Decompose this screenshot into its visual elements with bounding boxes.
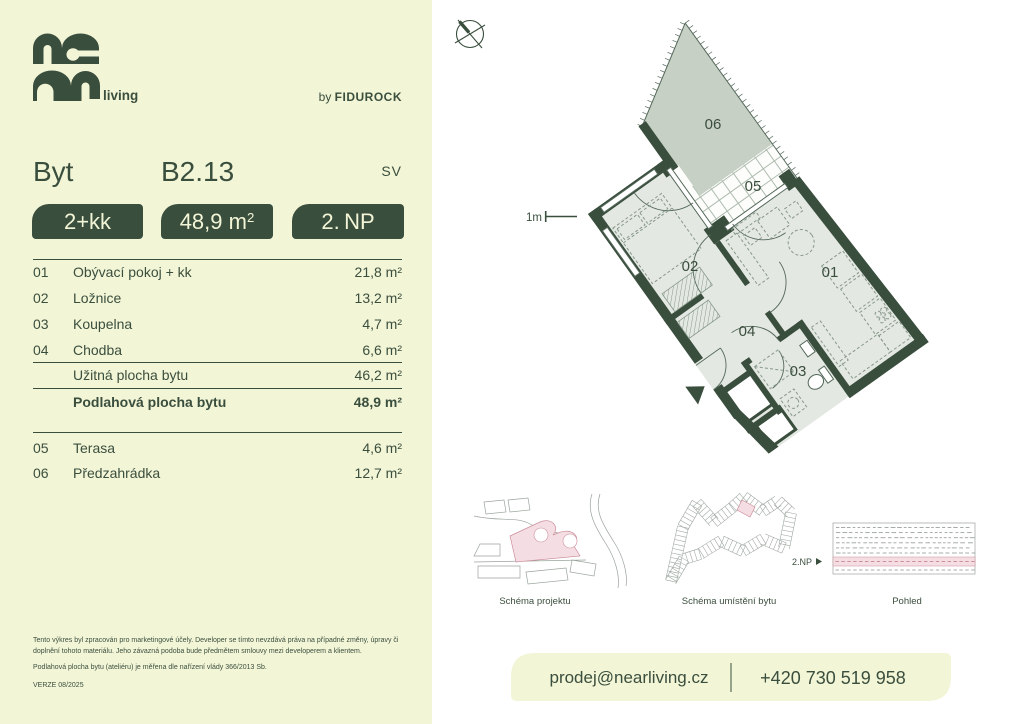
svg-text:Schéma umístění bytu: Schéma umístění bytu	[682, 596, 777, 607]
svg-text:+420 730 519 958: +420 730 519 958	[760, 668, 906, 688]
svg-text:02: 02	[682, 258, 699, 275]
svg-text:06: 06	[705, 116, 722, 133]
svg-text:03: 03	[790, 363, 807, 380]
svg-text:2.NP: 2.NP	[792, 557, 812, 567]
svg-text:Schéma projektu: Schéma projektu	[499, 596, 570, 607]
svg-text:Pohled: Pohled	[892, 596, 922, 607]
svg-text:05: 05	[745, 178, 762, 195]
svg-text:1m: 1m	[526, 212, 542, 224]
svg-text:04: 04	[739, 323, 756, 340]
svg-text:prodej@nearliving.cz: prodej@nearliving.cz	[549, 668, 708, 687]
svg-text:01: 01	[822, 264, 839, 281]
